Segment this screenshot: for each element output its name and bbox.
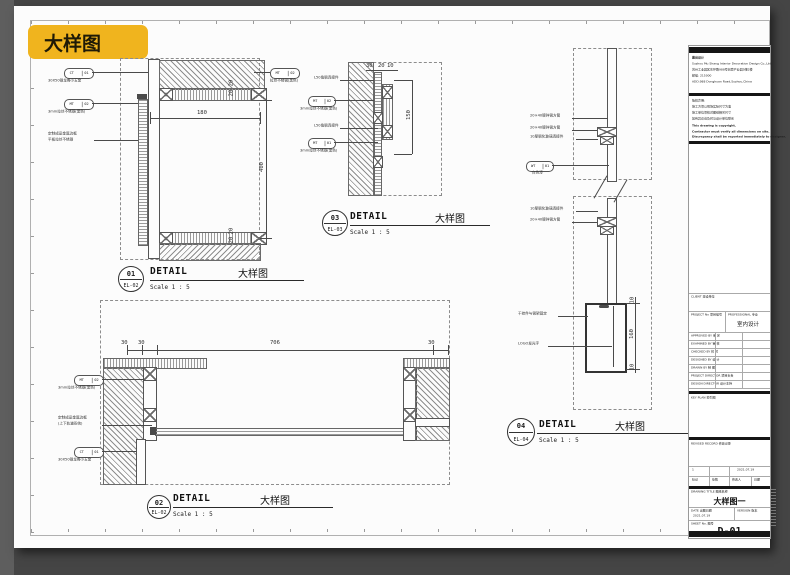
d04-hanger — [599, 305, 609, 308]
material-tag: MT02 — [74, 375, 104, 386]
company-line: 苏州工业园区东环路988号创意产业园5幢2楼 — [692, 68, 753, 72]
tag-no: 02 — [287, 71, 296, 76]
dimension-line — [366, 70, 398, 71]
sheet-label: SHEET No. 图号 — [691, 522, 714, 526]
leader-line — [94, 140, 138, 141]
leader-line — [340, 80, 374, 81]
d04-logo-face-line — [613, 306, 614, 367]
leader-line — [102, 451, 136, 452]
title-underline — [173, 507, 333, 508]
bubble-divider — [120, 279, 142, 280]
dimension-ext — [448, 345, 449, 355]
leader-line — [102, 425, 152, 426]
tag-no: 02 — [91, 378, 100, 383]
dim-label: 180 — [197, 110, 207, 116]
tag-code: CT — [68, 71, 76, 76]
detail-title-cn: 大样图 — [615, 418, 645, 433]
dimension-line — [412, 80, 413, 154]
dimension-line — [266, 100, 267, 238]
dim-label: 20 — [228, 90, 234, 97]
titleblock-bar — [689, 437, 770, 440]
dim-label: 10 — [629, 364, 635, 371]
project-no-label: PROJECT No 项目编号 — [691, 313, 722, 317]
callout-caption: 30X50钢龙骨小五金 — [58, 458, 91, 462]
detail-bubble: 02 EL-02 — [147, 495, 171, 519]
professional-label: PROFESSIONAL 专业 — [728, 313, 758, 317]
d04-connector — [600, 136, 614, 145]
d04-connector — [600, 226, 614, 235]
detail-bubble: 04 EL-04 — [507, 418, 535, 446]
d04-logo-box — [585, 303, 627, 373]
company-line: ADD.988 Donghuan Road,Suzhou,China — [692, 80, 752, 84]
callout-caption: LOGO发光字 — [518, 342, 539, 346]
leader-line — [92, 103, 138, 104]
dim-label: 706 — [270, 340, 280, 346]
frame-ticks-bottom — [31, 529, 767, 532]
d02-blocking-box — [143, 367, 157, 381]
personnel-label: DESIGN DIRECTOR 设计主持 — [691, 382, 732, 386]
screenshot-root: { "badge": "大样图", "details": { "d01": { … — [0, 0, 790, 575]
detail-scale: Scale 1 : 5 — [539, 437, 579, 444]
d01-bottom-hatch — [159, 243, 261, 261]
d02-right-wall-hatch — [415, 367, 450, 441]
cell-divider — [734, 507, 735, 520]
leader-line — [334, 100, 374, 101]
personnel-row — [689, 380, 770, 381]
dim-label: 400 — [259, 162, 265, 172]
d02-blocking-box — [143, 408, 157, 422]
cell-divider — [689, 520, 770, 521]
material-tag: MT02 — [270, 68, 300, 79]
detail-title-cn: 大样图 — [435, 210, 465, 225]
personnel-label: PROJECT DIRECTOR 项目负责 — [691, 374, 733, 378]
frame-ticks-top — [31, 21, 767, 24]
dim-label: 20 — [378, 63, 385, 69]
personnel-row — [689, 348, 770, 349]
d03-steel-plate — [374, 72, 382, 196]
detail-ref: EL-02 — [119, 283, 143, 289]
detail-title: DETAIL — [173, 493, 210, 504]
leader-line — [92, 72, 148, 73]
d01-panel — [138, 99, 148, 246]
dimension-ext — [433, 345, 434, 355]
bubble-divider — [509, 432, 533, 433]
callout-caption: L50角钢连接件 — [314, 124, 339, 128]
drawing-sheet: 大样图 180 400 20 20 20 20 CT01 30X50钢龙骨小五金… — [14, 6, 770, 548]
callout-caption: 3mm拉丝不锈钢(黑色) — [300, 107, 337, 111]
callout-caption: 20×40镀锌钢方管 — [530, 126, 560, 130]
cell-divider — [689, 311, 770, 312]
tag-code: MT — [68, 102, 76, 107]
detail-title: DETAIL — [150, 266, 187, 277]
tag-code: MT — [274, 71, 282, 76]
d01-blocking-box — [159, 88, 173, 101]
titleblock-bar — [689, 93, 770, 96]
revision-date: 2021.07.19 — [737, 468, 754, 472]
tag-code: WT — [530, 164, 538, 169]
detail-title: DETAIL — [350, 211, 387, 222]
professional-value: 室内设计 — [727, 320, 769, 328]
detail-ref: EL-03 — [323, 227, 347, 233]
d03-wall-hatch — [348, 62, 374, 196]
callout-caption: 3mm拉丝不锈钢(黑色) — [58, 386, 95, 390]
callout-caption: 30X50钢龙骨小五金 — [48, 79, 81, 83]
company-name: 慕尚设计 — [692, 56, 704, 60]
callout-caption: L50角钢连接件 — [314, 76, 339, 80]
personnel-row — [689, 372, 770, 373]
dimension-ext — [157, 345, 158, 355]
revised-label: REVISED RECORD 修改记录 — [691, 442, 731, 446]
note-line-en: This drawing is copyright. — [692, 124, 736, 128]
cell-divider — [689, 332, 770, 333]
callout-caption: 定制成品金属边框 — [48, 132, 77, 136]
dim-label: 10 — [629, 297, 635, 304]
detail-ref: EL-04 — [508, 437, 534, 443]
detail-title: DETAIL — [539, 419, 576, 430]
callout-caption: 定制成品金属边框 — [58, 416, 87, 420]
note-line: 如有异议请及时与设计单位联系 — [692, 117, 734, 121]
callout-caption: 20×40镀锌钢方管 — [530, 218, 560, 222]
material-tag: MT02 — [64, 99, 94, 110]
bubble-divider — [149, 507, 169, 508]
cell-divider — [725, 312, 726, 332]
leader-line — [552, 165, 609, 166]
callout-caption: 3mm拉丝不锈钢(黑色) — [48, 110, 85, 114]
material-tag: MT02 — [308, 96, 336, 107]
callout-caption: (上下轨道系统) — [58, 422, 82, 426]
drawing-title: 大样图一 — [689, 496, 770, 507]
titleblock-bar — [689, 531, 770, 537]
tag-code: MT — [312, 141, 320, 146]
titleblock-bar — [689, 486, 770, 489]
cell-divider — [709, 466, 710, 486]
note-line: 版权声明: — [692, 99, 705, 103]
cell-divider — [742, 332, 743, 388]
keyplan-label: KEY PLAN 索引图 — [691, 396, 715, 400]
title-underline — [350, 225, 490, 226]
leader-line — [576, 139, 598, 140]
personnel-row — [689, 340, 770, 341]
dimension-ext — [260, 112, 261, 124]
leader-line — [340, 128, 378, 129]
rev-header: 修改人 — [732, 478, 741, 482]
leader-line — [334, 142, 378, 143]
tag-no: 01 — [81, 71, 90, 76]
personnel-label: DRAWN BY 制 图 — [691, 366, 715, 370]
note-line: 施工单位须核对图纸相关尺寸 — [692, 111, 731, 115]
dim-label: 20 — [228, 237, 234, 244]
callout-caption: 20×40镀锌钢方管 — [530, 114, 560, 118]
callout-caption: 白色漆 — [532, 171, 543, 175]
title-block: 慕尚设计 Suzhou Mu Shang Interior Decoration… — [688, 45, 771, 539]
d02-left-panel — [136, 439, 146, 485]
leader-line — [102, 379, 144, 380]
dimension-ext — [394, 80, 412, 81]
d03-blocking-box — [373, 156, 383, 168]
d03-blocking-box — [373, 112, 383, 124]
note-line-en: Contractor must verify all dimensions on… — [692, 130, 770, 134]
fold-marks — [771, 488, 776, 526]
tag-code: MT — [78, 378, 86, 383]
note-line-en: Discrepancy shall be reported immediatel… — [692, 135, 786, 139]
tag-no: 01 — [91, 450, 100, 455]
d02-glass-panel — [155, 428, 407, 436]
d04-rod-lower — [607, 198, 617, 306]
d01-top-hatch — [159, 60, 265, 90]
titleblock-bar — [689, 391, 770, 394]
revision-no: 1 — [692, 468, 694, 472]
company-line: 邮编: 215000 — [692, 74, 711, 78]
d03-blocking-box — [382, 125, 393, 138]
window-left-edge — [0, 0, 14, 575]
tag-no: 02 — [81, 102, 90, 107]
dimension-ext — [260, 238, 272, 239]
detail-bubble: 01 EL-02 — [118, 266, 144, 292]
detail-number: 03 — [323, 214, 347, 222]
personnel-row — [689, 364, 770, 365]
cell-divider — [689, 293, 770, 294]
note-line: 施工方须以现场实际尺寸为准 — [692, 105, 731, 109]
dim-label: 150 — [406, 110, 412, 120]
dim-label: 30 — [366, 63, 373, 69]
leader-line — [558, 316, 588, 317]
titleblock-bar — [689, 47, 770, 53]
dimension-line — [150, 118, 260, 119]
detail-number: 01 — [119, 270, 143, 278]
leader-line — [572, 118, 608, 119]
callout-caption: 平板拉丝不锈钢 — [48, 138, 73, 142]
dimension-ext — [394, 154, 412, 155]
d01-panel-connector — [137, 94, 147, 99]
material-tag: CT01 — [64, 68, 94, 79]
leader-line — [572, 130, 597, 131]
d02-glass-connector — [150, 427, 156, 435]
tag-code: MT — [312, 99, 320, 104]
d04-rod-upper — [607, 48, 617, 182]
sheet-badge-label: 大样图 — [44, 29, 101, 56]
drawing-title-label: DRAWING TITLE 图纸名称 — [691, 490, 728, 494]
dimension-ext — [150, 112, 151, 124]
personnel-row — [689, 388, 770, 389]
d03-blocking-box — [382, 86, 393, 99]
detail-ref: EL-02 — [148, 510, 170, 516]
date-value: 2021.07.19 — [693, 514, 710, 518]
material-tag: MT01 — [308, 138, 336, 149]
title-underline — [537, 433, 692, 434]
dim-label: 20 — [228, 228, 234, 235]
tag-no: 02 — [324, 99, 332, 104]
cell-divider — [751, 476, 752, 486]
version-label: VERSION 版本 — [737, 509, 757, 513]
callout-caption: 10厚钢化玻璃连接件 — [530, 207, 563, 211]
detail-bubble: 03 EL-03 — [322, 210, 348, 236]
company-line: Suzhou Mu Shang Interior Decoration Desi… — [692, 62, 772, 66]
detail-title-cn: 大样图 — [238, 265, 268, 280]
dimension-line — [127, 350, 448, 351]
dimension-line — [635, 297, 636, 373]
leader-line — [576, 211, 598, 212]
tag-no: 01 — [542, 164, 550, 169]
leader-line — [572, 222, 597, 223]
frame-ticks-left — [31, 21, 34, 533]
tag-code: CT — [78, 450, 86, 455]
personnel-row — [689, 356, 770, 357]
detail-scale: Scale 1 : 5 — [173, 511, 213, 518]
dim-label: 160 — [629, 329, 635, 339]
client-label: CLIENT 建设单位 — [691, 295, 715, 299]
detail-number: 04 — [508, 422, 534, 430]
dimension-ext — [142, 345, 143, 355]
material-tag: CT01 — [74, 447, 104, 458]
title-underline — [150, 280, 304, 281]
tag-no: 01 — [324, 141, 332, 146]
leader-line — [548, 346, 612, 347]
detail-title-cn: 大样图 — [260, 492, 290, 507]
callout-caption: 3mm拉丝不锈钢(黑色) — [300, 149, 337, 153]
leader-line — [254, 72, 270, 73]
callout-caption: 拉丝不锈钢(黑色) — [270, 79, 298, 83]
dimension-ext — [260, 100, 272, 101]
cell-divider — [715, 332, 716, 388]
dim-label: 20 — [228, 80, 234, 87]
bubble-divider — [324, 223, 346, 224]
titleblock-bar — [689, 141, 770, 144]
detail-scale: Scale 1 : 5 — [350, 229, 390, 236]
callout-caption: 干挂件与钢架固定 — [518, 312, 547, 316]
callout-caption: 10厚钢化玻璃连接件 — [530, 135, 563, 139]
rev-header: 日期 — [754, 478, 760, 482]
cell-divider — [689, 507, 770, 508]
date-label: DATE 出图日期 — [691, 509, 712, 513]
detail-scale: Scale 1 : 5 — [150, 284, 190, 291]
detail-number: 02 — [148, 499, 170, 507]
cell-divider — [729, 466, 730, 486]
d02-right-ledge — [415, 418, 450, 427]
dim-label: 10 — [387, 63, 394, 69]
rev-header: 处数 — [712, 478, 718, 482]
sheet-badge: 大样图 — [28, 25, 148, 59]
rev-header: 标记 — [692, 478, 698, 482]
dimension-ext — [127, 345, 128, 355]
